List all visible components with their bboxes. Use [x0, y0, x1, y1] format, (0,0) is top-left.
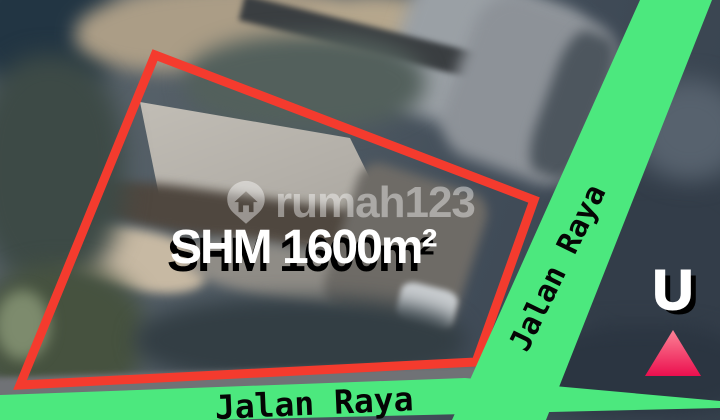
house-pin-icon [226, 179, 266, 226]
watermark-brand: rumah123 [275, 181, 475, 225]
north-indicator: U [645, 262, 701, 376]
watermark: rumah123 [226, 179, 475, 226]
north-arrow-icon [645, 330, 701, 376]
plot-area-label: SHM 1600m² [170, 224, 435, 272]
north-letter: U [645, 262, 701, 318]
property-listing-image: Jalan Raya Jalan Raya rumah123 SHM 1600m… [0, 0, 720, 420]
